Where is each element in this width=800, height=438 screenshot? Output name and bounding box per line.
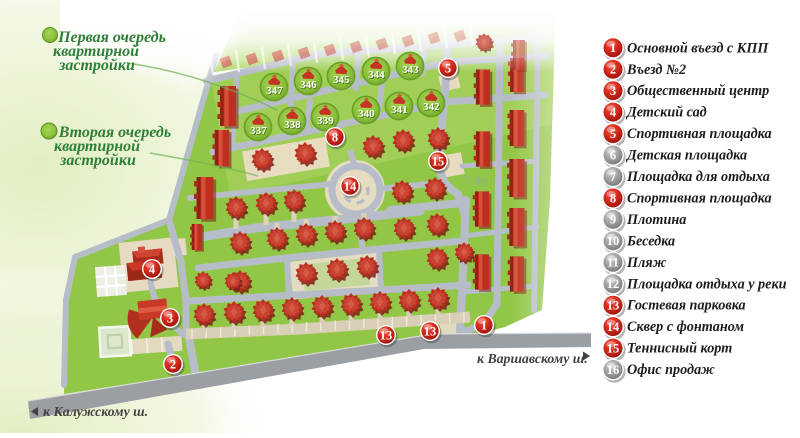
svg-text:к Калужскому ш.: к Калужскому ш. xyxy=(43,404,148,419)
svg-text:4: 4 xyxy=(149,262,156,276)
svg-text:338: 338 xyxy=(284,119,301,131)
svg-text:337: 337 xyxy=(250,125,267,137)
svg-text:14: 14 xyxy=(344,179,357,193)
svg-text:2: 2 xyxy=(610,63,616,77)
svg-text:15: 15 xyxy=(432,154,445,168)
svg-text:Плотина: Плотина xyxy=(626,212,686,228)
svg-text:344: 344 xyxy=(368,69,385,81)
svg-text:16: 16 xyxy=(607,363,620,377)
svg-text:11: 11 xyxy=(607,256,619,270)
svg-text:5: 5 xyxy=(610,127,616,141)
svg-text:341: 341 xyxy=(391,104,408,116)
svg-text:14: 14 xyxy=(607,320,620,334)
svg-text:Гостевая парковка: Гостевая парковка xyxy=(626,298,746,314)
svg-text:5: 5 xyxy=(445,61,451,75)
svg-text:339: 339 xyxy=(317,115,334,127)
svg-text:13: 13 xyxy=(607,299,620,313)
svg-text:Площадка отдыха у реки: Площадка отдыха у реки xyxy=(626,276,787,292)
svg-text:Сквер с фонтаном: Сквер с фонтаном xyxy=(627,319,744,335)
svg-text:10: 10 xyxy=(607,234,620,248)
svg-text:8: 8 xyxy=(610,191,616,205)
svg-text:13: 13 xyxy=(380,328,393,342)
svg-text:6: 6 xyxy=(610,148,616,162)
svg-text:343: 343 xyxy=(402,64,419,76)
svg-text:4: 4 xyxy=(610,105,617,119)
svg-text:Детская площадка: Детская площадка xyxy=(625,148,747,164)
svg-text:Беседка: Беседка xyxy=(626,233,675,249)
svg-text:к Варшавскому ш.: к Варшавскому ш. xyxy=(477,351,588,366)
svg-text:345: 345 xyxy=(333,74,350,86)
svg-text:Основной въезд с КПП: Основной въезд с КПП xyxy=(627,40,769,56)
svg-text:Пляж: Пляж xyxy=(626,255,667,271)
svg-text:Офис продаж: Офис продаж xyxy=(627,362,715,378)
svg-text:Въезд №2: Въезд №2 xyxy=(626,62,686,78)
svg-text:12: 12 xyxy=(607,277,620,291)
svg-text:Детский сад: Детский сад xyxy=(625,105,707,121)
svg-text:Спортивная площадка: Спортивная площадка xyxy=(627,190,772,206)
svg-text:Теннисный корт: Теннисный корт xyxy=(627,341,732,357)
svg-text:342: 342 xyxy=(423,101,440,113)
svg-text:15: 15 xyxy=(607,341,620,355)
svg-text:Площадка для отдыха: Площадка для отдыха xyxy=(626,169,770,185)
svg-text:застройки: застройки xyxy=(59,152,136,169)
svg-text:2: 2 xyxy=(170,357,176,371)
svg-text:9: 9 xyxy=(610,213,616,227)
svg-text:22.jpg: 22.jpg xyxy=(462,175,489,186)
svg-text:застройки: застройки xyxy=(58,57,135,74)
svg-text:347: 347 xyxy=(266,85,283,97)
svg-text:Спортивная площадка: Спортивная площадка xyxy=(627,126,772,142)
svg-text:8: 8 xyxy=(332,130,338,144)
svg-text:7: 7 xyxy=(610,170,616,184)
svg-text:Общественный центр: Общественный центр xyxy=(627,83,769,99)
svg-text:1: 1 xyxy=(481,318,487,332)
svg-text:13: 13 xyxy=(424,324,437,338)
svg-text:1: 1 xyxy=(610,41,616,55)
svg-text:346: 346 xyxy=(300,79,317,91)
svg-text:3: 3 xyxy=(610,84,616,98)
svg-text:3: 3 xyxy=(167,311,173,325)
svg-text:340: 340 xyxy=(358,108,375,120)
